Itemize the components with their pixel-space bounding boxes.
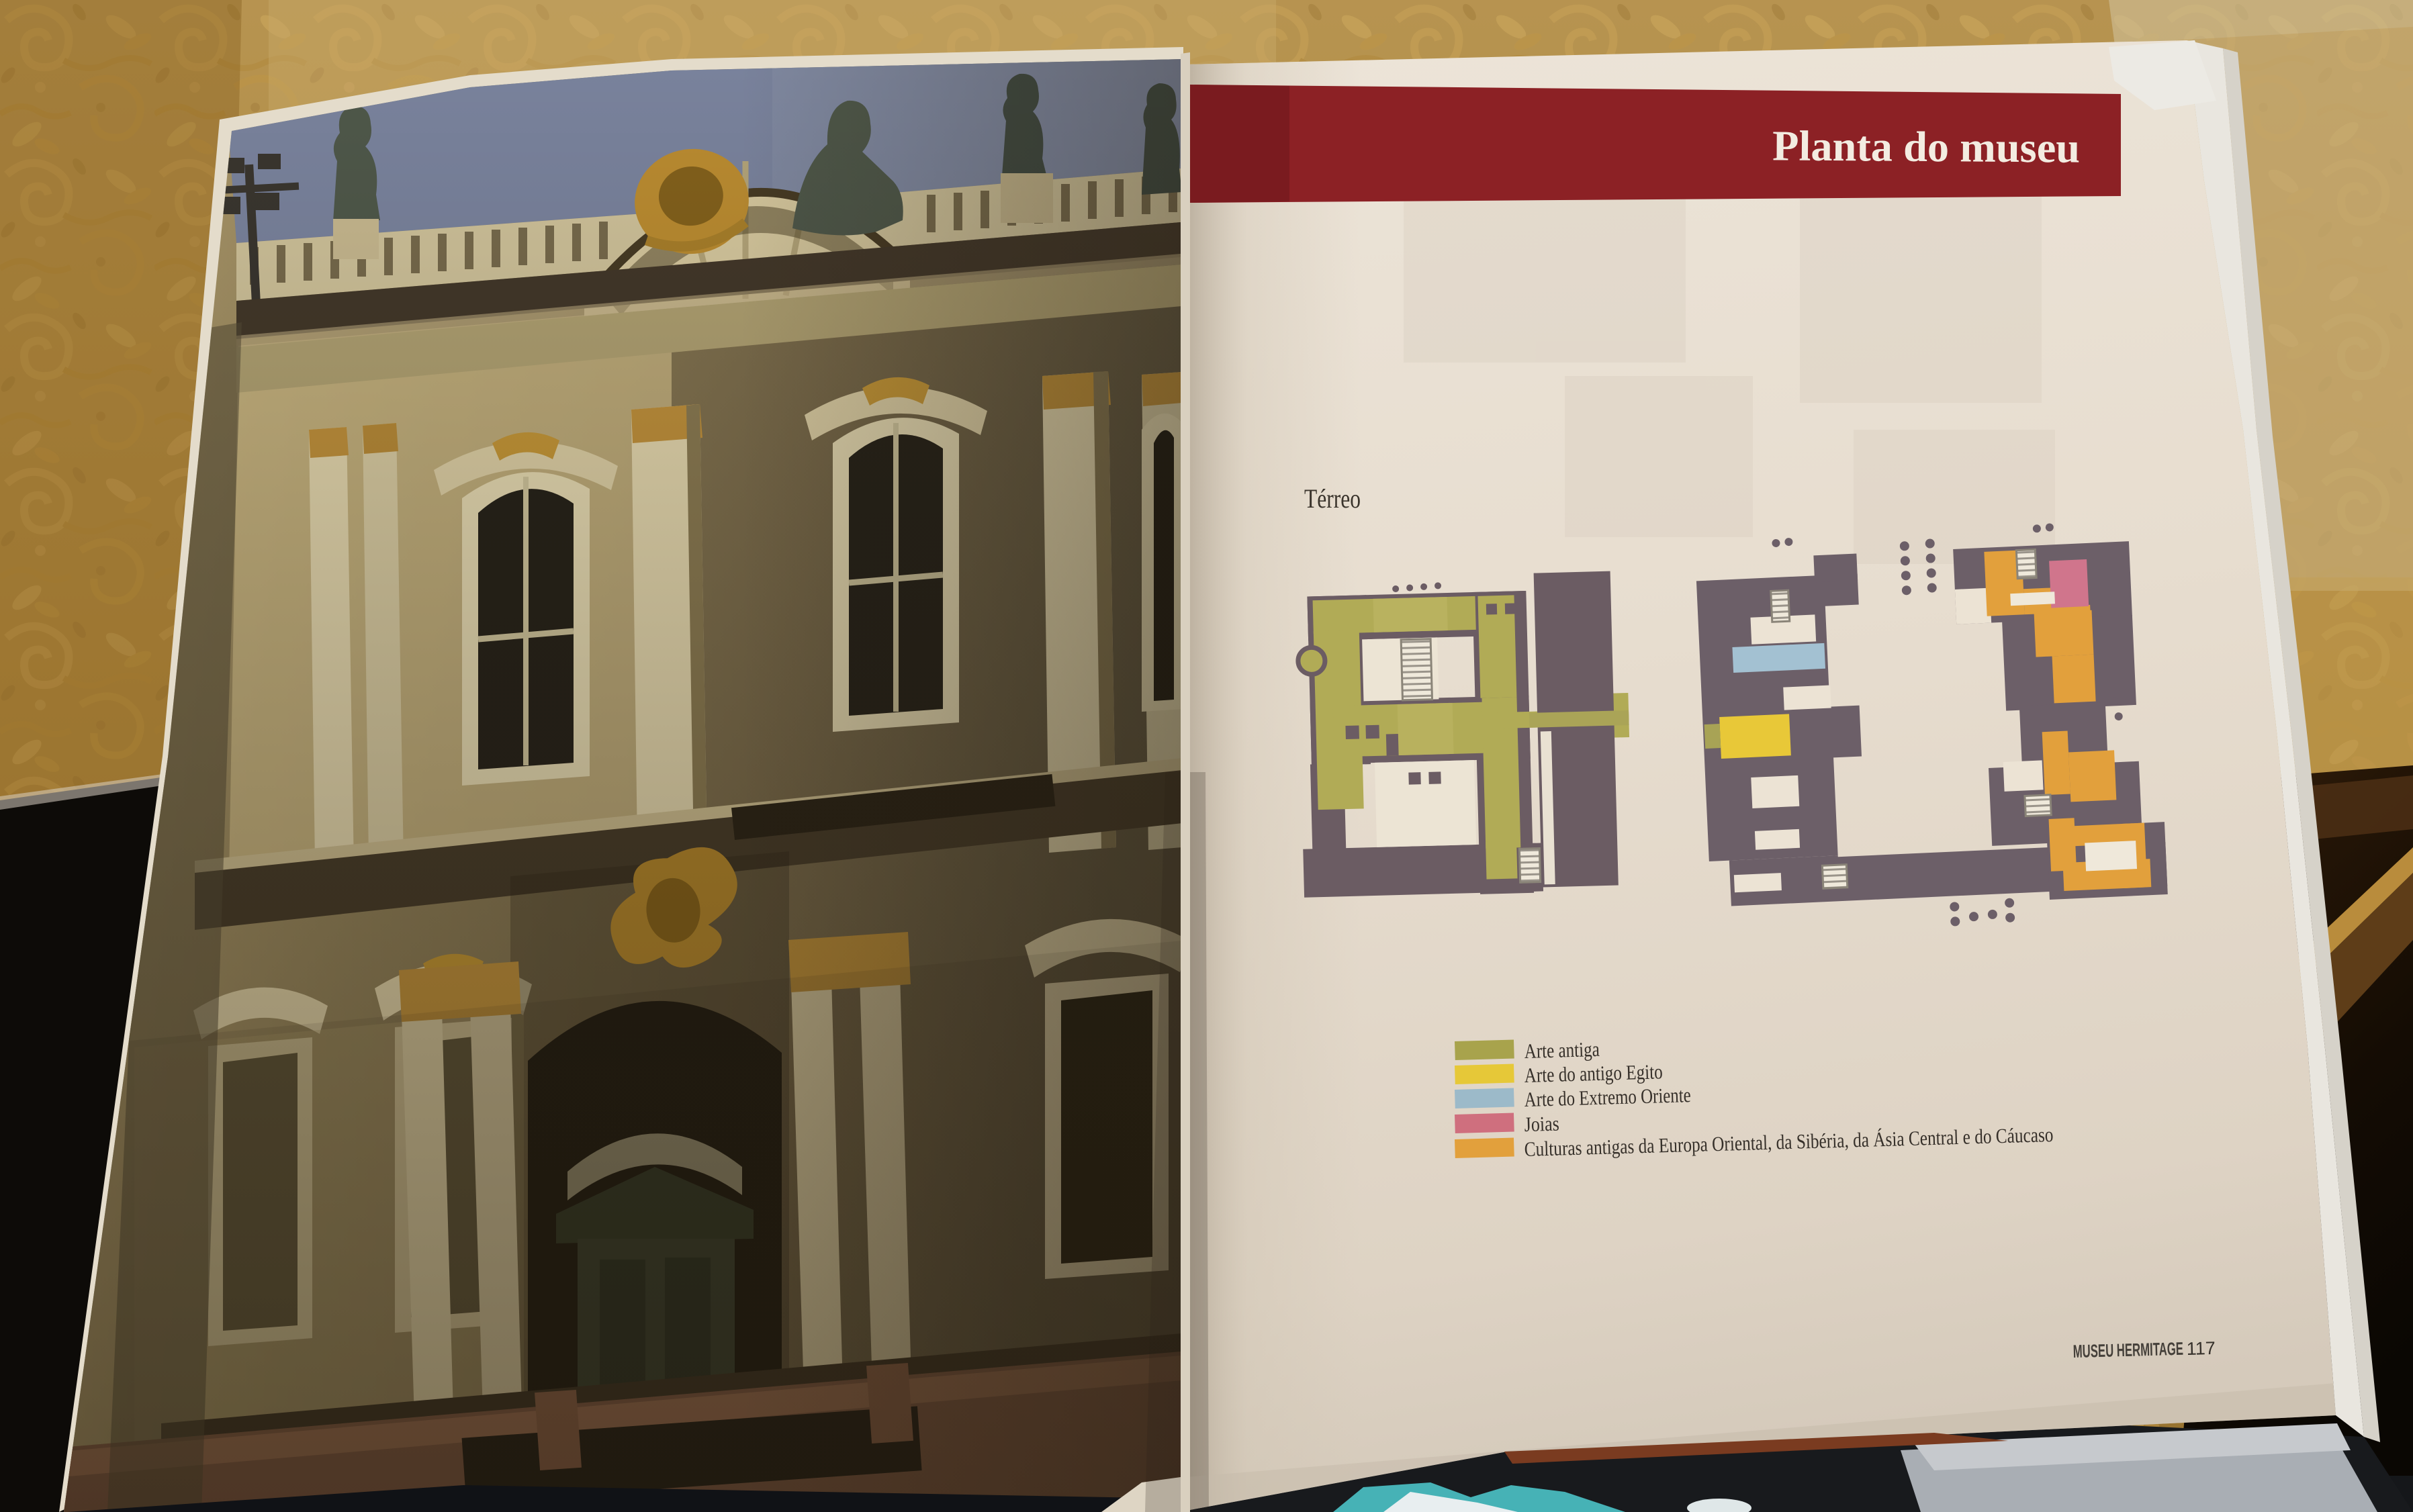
svg-text:Arte do antigo Egito: Arte do antigo Egito — [1524, 1059, 1663, 1087]
svg-text:Térreo: Térreo — [1304, 483, 1361, 514]
svg-text:Planta do museu: Planta do museu — [1772, 122, 2080, 171]
svg-text:Arte do Extremo Oriente: Arte do Extremo Oriente — [1524, 1083, 1691, 1111]
svg-text:Joias: Joias — [1524, 1112, 1559, 1136]
svg-text:Arte antiga: Arte antiga — [1524, 1037, 1600, 1063]
svg-text:117: 117 — [2186, 1338, 2216, 1359]
svg-text:MUSEU HERMITAGE: MUSEU HERMITAGE — [2073, 1339, 2183, 1362]
